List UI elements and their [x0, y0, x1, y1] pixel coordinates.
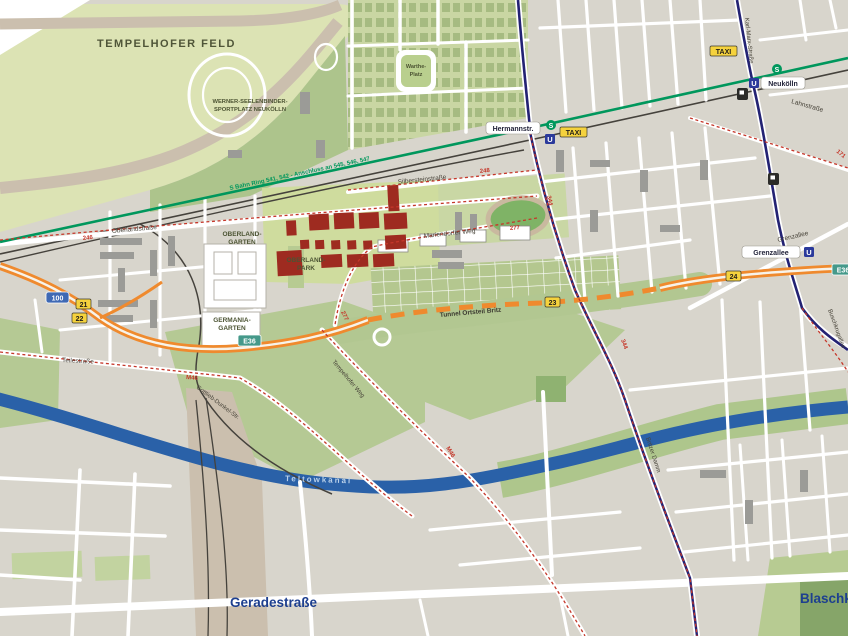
s-symbol: S	[549, 123, 554, 130]
sportplatz-label-1: WERNER-SEELENBINDER-	[212, 99, 287, 105]
germania-garten-label-2: GARTEN	[218, 325, 246, 332]
badge-exit-21: 21	[80, 302, 88, 309]
u-symbol: U	[547, 135, 552, 144]
badge-e36: E36	[837, 268, 848, 275]
route-m46: M46	[186, 375, 199, 382]
badge-a100: 100	[52, 296, 64, 303]
oberland-park-label-2: PARK	[297, 265, 315, 272]
fuel-station-icon	[768, 173, 779, 185]
warthe-platz: Warthe- Platz	[396, 50, 436, 92]
route-246: 246	[83, 235, 94, 242]
badge-e36: E36	[243, 339, 256, 346]
map-canvas[interactable]: Warthe- Platz Hermannstr. S U TAXI S U N…	[0, 0, 848, 636]
warthe-platz-label-2: Platz	[410, 72, 423, 78]
oberland-park-label-1: OBERLAND-	[287, 257, 326, 264]
geradestrasse-label: Geradestraße	[230, 595, 318, 610]
s-symbol: S	[775, 67, 780, 74]
route-277: 277	[510, 225, 521, 232]
tempelhofer-feld-label: TEMPELHOFER FELD	[97, 38, 236, 50]
sportplatz-label-2: SPORTPLATZ NEUKÖLLN	[214, 106, 286, 113]
station-neukoelln-label: Neukölln	[768, 81, 798, 88]
taxi-label: TAXI	[716, 49, 731, 56]
germania-garten-label-1: GERMANIA-	[213, 317, 251, 324]
u-symbol: U	[751, 79, 756, 88]
blaschkoallee-label: Blaschko	[800, 591, 848, 606]
badge-exit-24: 24	[730, 274, 738, 281]
route-248: 248	[480, 168, 491, 175]
taxi-label: TAXI	[566, 130, 581, 137]
station-hermannstr-label: Hermannstr.	[493, 126, 534, 133]
oberland-garten-label-2: GARTEN	[228, 239, 256, 246]
oberland-garten-label-1: OBERLAND-	[223, 231, 262, 238]
badge-exit-22: 22	[76, 316, 84, 323]
u-symbol: U	[806, 248, 811, 257]
taxi-badge-top: TAXI	[710, 46, 737, 56]
warthe-platz-label-1: Warthe-	[406, 64, 426, 70]
station-grenzallee-label: Grenzallee	[753, 250, 789, 257]
fuel-station-icon	[737, 88, 748, 100]
city-map: Warthe- Platz Hermannstr. S U TAXI S U N…	[0, 0, 848, 636]
badge-exit-23: 23	[549, 300, 557, 307]
